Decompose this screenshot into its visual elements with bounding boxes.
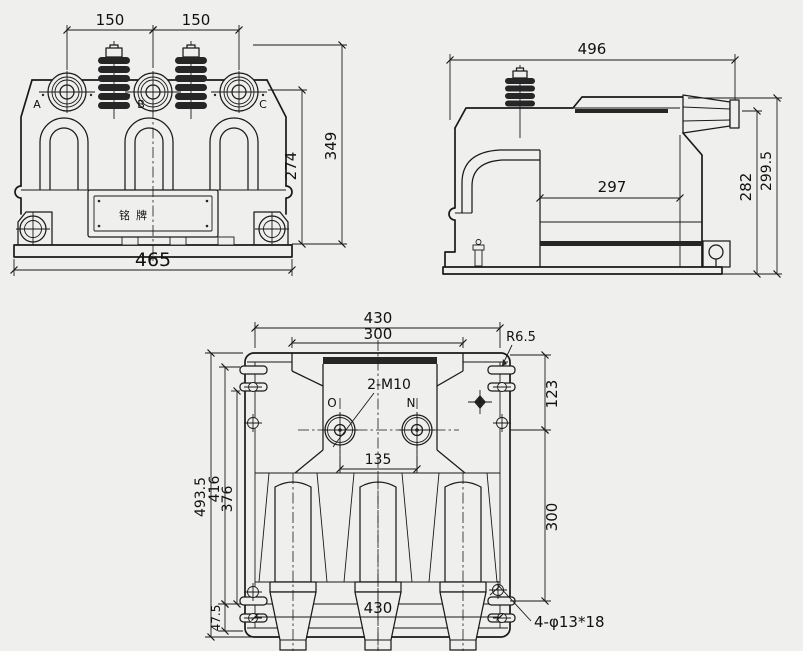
front-bushings: A B C [33,71,267,113]
side-dim-299-5: 299.5 [759,151,775,191]
phase-label-c: C [259,98,267,111]
phase-label-b: B [137,98,145,111]
front-left-foot [16,212,52,246]
bottom-dim-123: 123 [543,380,561,409]
terminal-o-label: O [327,396,336,410]
bottom-dim-300-top: 300 [364,325,393,343]
front-dim-150-left: 150 [96,11,125,29]
nameplate-text: 铭牌 [119,208,153,222]
bottom-dim-135: 135 [365,452,392,468]
bottom-dim-r6-5: R6.5 [506,330,536,345]
slots-label: 4-φ13*18 [534,613,605,631]
bottom-dim-430-bottom: 430 [364,599,393,617]
front-dim-349: 349 [322,132,340,161]
bottom-dim-376: 376 [220,486,236,513]
lug-a [270,473,316,651]
front-dim-150-right: 150 [182,11,211,29]
side-dim-282: 282 [737,173,755,202]
bottom-dim-47-5: 47.5 [209,605,223,632]
thread-label: 2-M10 [367,377,411,393]
front-dim-274: 274 [282,152,300,181]
technical-drawing: 铭牌 A B C 150 150 349 [0,0,803,651]
terminal-n-label: N [407,396,416,410]
front-right-foot [254,212,289,246]
lug-c [440,473,486,651]
phase-label-a: A [33,98,41,111]
front-dim-465: 465 [135,249,171,271]
side-dim-297: 297 [598,178,627,196]
side-dim-496: 496 [578,40,607,58]
bottom-dim-300-right: 300 [543,503,561,532]
